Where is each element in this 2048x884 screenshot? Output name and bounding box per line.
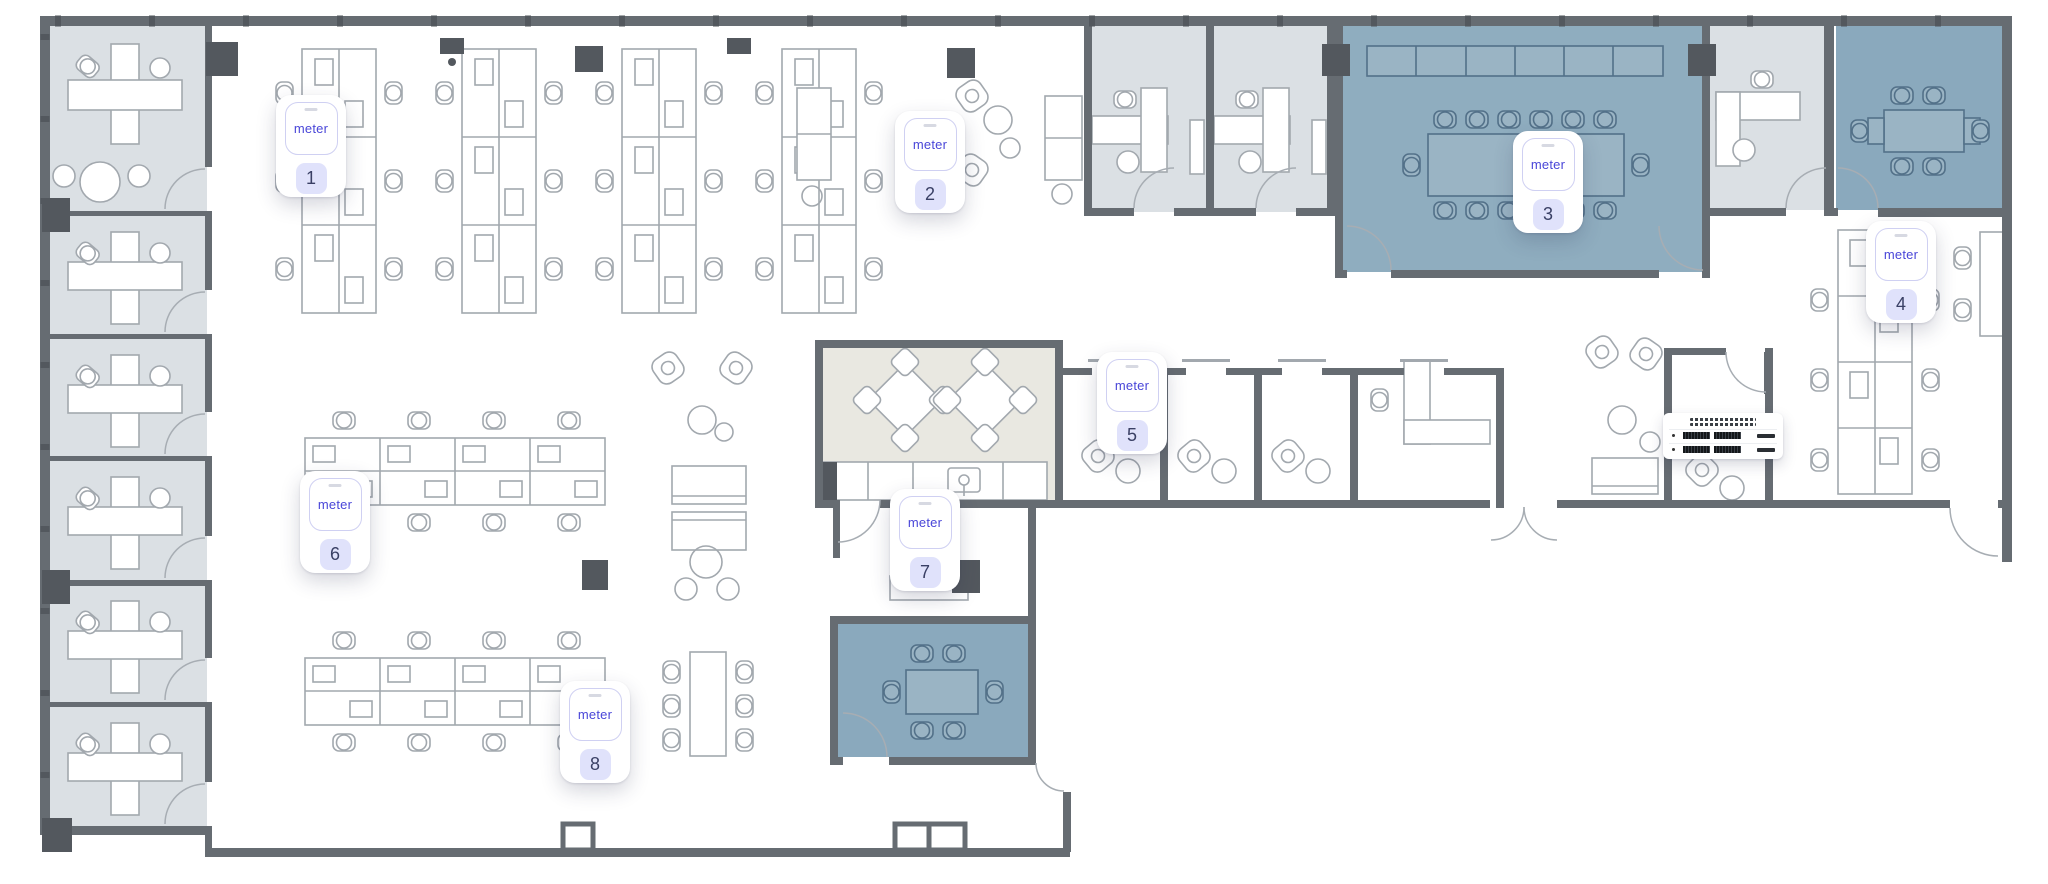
device-number-badge: 1 [296,163,327,194]
meter-device-face: meter [899,496,952,549]
meter-wordmark: meter [913,137,947,152]
device-number-badge: 3 [1533,199,1564,230]
switch-ports-icon [1683,446,1710,453]
switch-ports-icon [1683,432,1710,439]
switch-uplink-icon [1757,448,1775,452]
device-notch-icon [329,484,342,487]
meter-wordmark: meter [908,515,942,530]
meter-device-face: meter [309,478,362,531]
meter-wordmark: meter [1531,157,1565,172]
meter-access-point[interactable]: meter 5 [1097,352,1167,454]
meter-device-face: meter [904,118,957,171]
switch-row [1669,429,1777,441]
network-rack[interactable] [1663,413,1783,459]
device-number-badge: 5 [1117,420,1148,451]
wall-bumps [563,824,965,850]
meter-access-point[interactable]: meter 4 [1866,221,1936,323]
device-notch-icon [924,124,937,127]
meter-wordmark: meter [578,707,612,722]
meter-wordmark: meter [1884,247,1918,262]
switch-led-icon [1672,448,1675,451]
meter-device-face: meter [569,688,622,741]
device-notch-icon [589,694,602,697]
long-table [663,652,753,756]
device-notch-icon [1126,365,1139,368]
meter-access-point[interactable]: meter 6 [300,471,370,573]
meter-device-face: meter [1522,138,1575,191]
device-number-badge: 2 [915,179,946,210]
switch-ports-icon [1714,432,1741,439]
desk-bank-group [276,49,882,313]
meter-access-point[interactable]: meter 8 [560,681,630,783]
meter-access-point[interactable]: meter 3 [1513,131,1583,233]
switch-led-icon [1672,434,1675,437]
device-notch-icon [305,108,318,111]
meter-device-face: meter [285,102,338,155]
meter-device-face: meter [1875,228,1928,281]
meter-wordmark: meter [1115,378,1149,393]
device-number-badge: 8 [580,749,611,780]
meter-access-point[interactable]: meter 2 [895,111,965,213]
meter-device-face: meter [1106,359,1159,412]
device-notch-icon [919,502,932,505]
meter-wordmark: meter [294,121,328,136]
device-number-badge: 6 [320,539,351,570]
meter-access-point[interactable]: meter 7 [890,489,960,591]
device-notch-icon [1542,144,1555,147]
device-number-badge: 7 [910,557,941,588]
patch-panel-icon [1690,416,1756,427]
switch-ports-icon [1714,446,1741,453]
device-notch-icon [1895,234,1908,237]
switch-row [1669,443,1777,455]
central-lounge [649,349,756,600]
meter-wordmark: meter [318,497,352,512]
switch-uplink-icon [1757,434,1775,438]
device-number-badge: 4 [1886,289,1917,320]
floor-plan-view: meter 1 meter 2 meter 3 meter 4 [0,0,2048,884]
meter-access-point[interactable]: meter 1 [276,95,346,197]
